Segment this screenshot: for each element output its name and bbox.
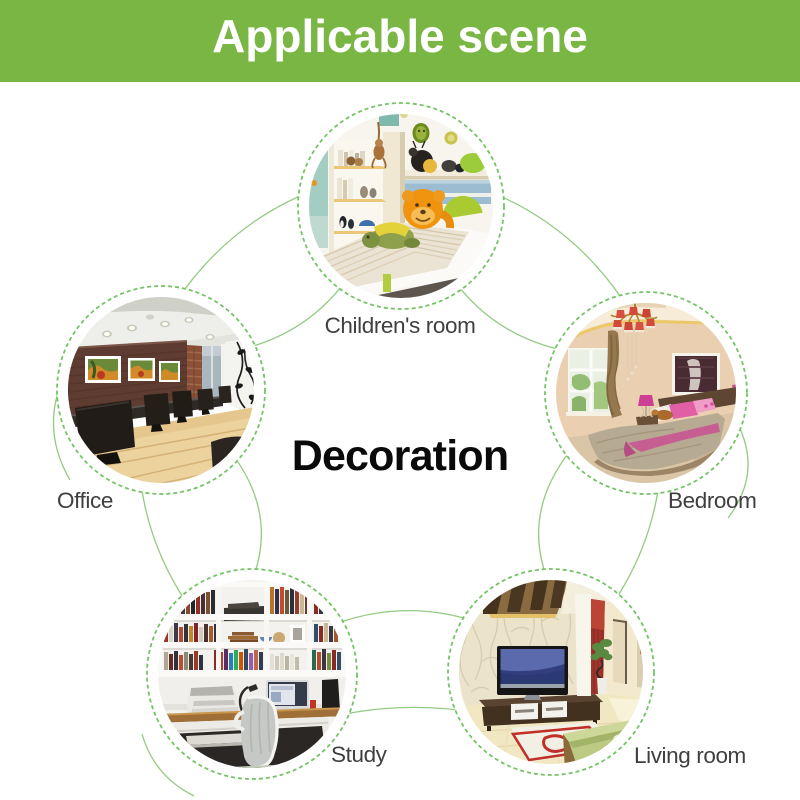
svg-text:Decoration: Decoration — [292, 432, 509, 480]
svg-text:Living room: Living room — [634, 743, 746, 768]
svg-text:Children's room: Children's room — [325, 313, 476, 338]
svg-text:Study: Study — [331, 742, 388, 767]
svg-text:Office: Office — [57, 488, 113, 513]
svg-text:Bedroom: Bedroom — [668, 488, 757, 513]
